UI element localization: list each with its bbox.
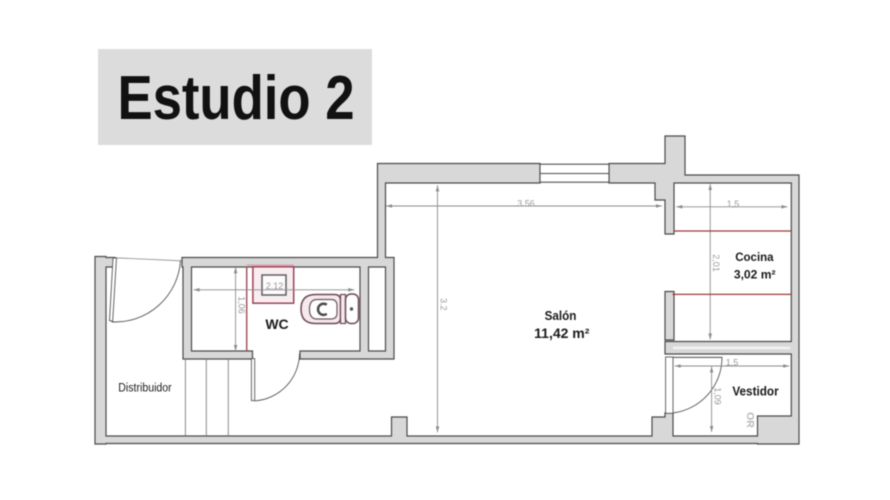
svg-text:3,02 m²: 3,02 m² — [734, 268, 776, 282]
svg-text:WC: WC — [265, 316, 288, 332]
svg-text:1,5: 1,5 — [727, 199, 740, 209]
svg-text:3.56: 3.56 — [517, 199, 535, 209]
svg-text:1,5: 1,5 — [726, 357, 739, 367]
svg-text:Vestidor: Vestidor — [732, 384, 779, 398]
svg-text:2,01: 2,01 — [711, 254, 721, 272]
svg-text:Salón: Salón — [545, 309, 577, 324]
svg-text:Cocina: Cocina — [735, 251, 774, 264]
svg-text:3.2: 3.2 — [439, 298, 449, 311]
svg-text:1,06: 1,06 — [237, 296, 247, 314]
svg-text:OR: OR — [744, 412, 756, 428]
svg-text:11,42 m²: 11,42 m² — [534, 325, 590, 341]
svg-text:1,09: 1,09 — [713, 387, 723, 405]
svg-text:Distribuidor: Distribuidor — [118, 382, 172, 395]
svg-text:Estudio 2: Estudio 2 — [117, 64, 354, 133]
svg-text:2,12: 2,12 — [266, 281, 284, 291]
